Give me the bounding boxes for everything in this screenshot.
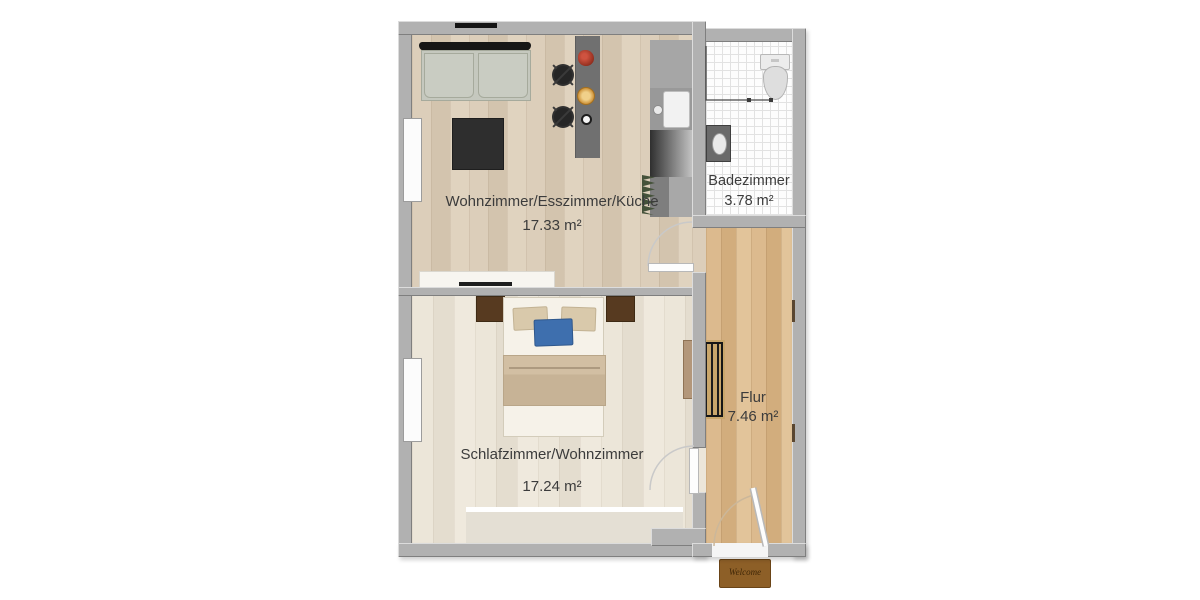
window-icon — [403, 358, 422, 442]
living-door-opening — [692, 228, 706, 272]
kitchen-sink-unit — [650, 88, 692, 130]
room-name: Badezimmer — [706, 173, 792, 189]
bathroom-label: Badezimmer 3.78 m² — [706, 173, 792, 209]
kitchen-counter-icon — [650, 40, 692, 89]
bedroom-label: Schlafzimmer/Wohnzimmer 17.24 m² — [412, 447, 692, 495]
faucet-icon — [653, 105, 663, 115]
wall-mark — [792, 300, 795, 322]
wall-divider-bath-hall — [692, 215, 806, 228]
wall-right — [792, 28, 806, 557]
room-area: 7.46 m² — [710, 409, 796, 425]
wall-top-bathroom — [692, 28, 806, 42]
chair-icon — [552, 64, 574, 86]
washbasin-icon — [706, 125, 731, 162]
nightstand-icon — [606, 296, 635, 322]
doormat-text: Welcome — [720, 560, 770, 585]
window-icon — [403, 118, 422, 202]
blanket-icon — [503, 355, 606, 406]
door-leaf-living — [648, 263, 694, 272]
floorplan-canvas: Welcome Wohnzimm — [0, 0, 1200, 600]
wall-spine-middle — [692, 272, 706, 448]
wall-shelf-icon — [455, 23, 497, 28]
bed-icon — [503, 297, 604, 437]
entrance-threshold — [712, 543, 768, 557]
blue-cushion-icon — [534, 318, 574, 346]
room-area: 17.24 m² — [412, 479, 692, 495]
wall-top-living — [398, 21, 706, 35]
living-room-label: Wohnzimmer/Esszimmer/Küche 17.33 m² — [412, 194, 692, 234]
nightstand-icon — [476, 296, 505, 322]
sofa-cushion — [424, 53, 474, 98]
room-area: 3.78 m² — [706, 193, 792, 209]
room-name: Wohnzimmer/Esszimmer/Küche — [412, 194, 692, 210]
tv-icon — [459, 282, 512, 286]
basin-icon — [712, 133, 727, 155]
flower-pot-icon — [578, 50, 594, 66]
doormat-icon: Welcome — [719, 559, 771, 588]
chair-icon — [552, 106, 574, 128]
wall-divider-living-bedroom — [398, 287, 706, 296]
sofa-cushion — [478, 53, 528, 98]
wall-mark — [792, 424, 795, 442]
cup-icon — [581, 114, 592, 125]
room-name: Flur — [710, 390, 796, 406]
hall-label: Flur 7.46 m² — [710, 390, 796, 425]
bowl-icon — [577, 87, 595, 105]
kitchen-sink-icon — [663, 91, 690, 128]
stove-icon — [650, 130, 692, 177]
room-area: 17.33 m² — [412, 218, 692, 234]
coffee-table-icon — [452, 118, 504, 170]
room-name: Schlafzimmer/Wohnzimmer — [412, 447, 692, 463]
sofa-icon — [421, 50, 531, 101]
wall-spine-upper — [692, 21, 706, 228]
